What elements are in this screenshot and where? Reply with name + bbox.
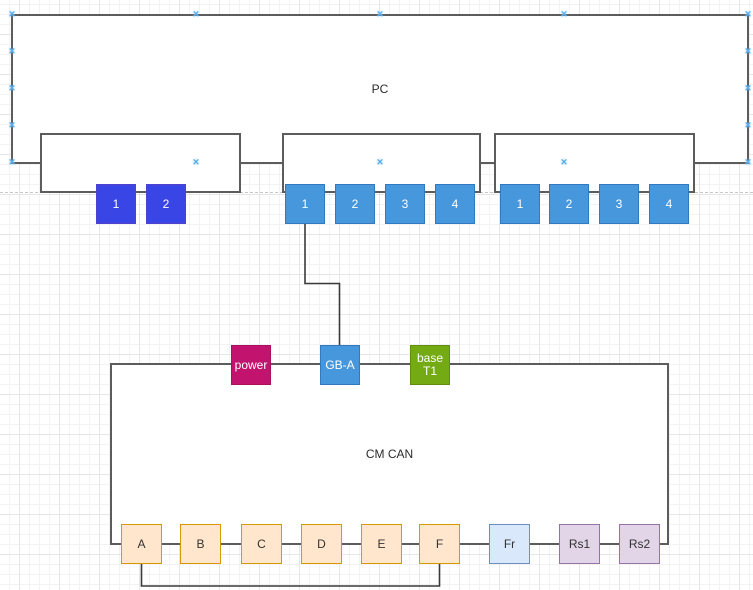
connection-point-icon[interactable]: × bbox=[193, 10, 199, 21]
adapter1-port-2[interactable]: 2 bbox=[146, 184, 186, 224]
connection-point-icon[interactable]: × bbox=[377, 158, 383, 169]
connector-label: power bbox=[235, 358, 268, 372]
connector-port-a-to-port-f[interactable] bbox=[142, 563, 440, 586]
cm-can-port-c[interactable]: C bbox=[241, 524, 282, 564]
port-label: C bbox=[257, 537, 266, 551]
cm-can-port-rs2[interactable]: Rs2 bbox=[619, 524, 660, 564]
port-label: 1 bbox=[302, 197, 309, 211]
connection-point-icon[interactable]: × bbox=[193, 158, 199, 169]
adapter3-port-2[interactable]: 2 bbox=[549, 184, 589, 224]
connection-point-icon[interactable]: × bbox=[745, 10, 751, 21]
diagram-canvas: PC CM CAN 1 2 1 2 3 4 1 2 3 4 power GB-A… bbox=[0, 0, 753, 590]
cm-can-port-fr[interactable]: Fr bbox=[489, 524, 530, 564]
cm-can-port-f[interactable]: F bbox=[419, 524, 460, 564]
connection-point-icon[interactable]: × bbox=[561, 158, 567, 169]
connection-point-icon[interactable]: × bbox=[745, 47, 751, 58]
cm-can-power-connector[interactable]: power bbox=[231, 345, 271, 385]
cm-can-port-a[interactable]: A bbox=[121, 524, 162, 564]
cm-can-port-rs1[interactable]: Rs1 bbox=[559, 524, 600, 564]
adapter3-port-1[interactable]: 1 bbox=[500, 184, 540, 224]
connector-layer bbox=[0, 0, 753, 590]
connector-label-line2: T1 bbox=[423, 365, 437, 378]
cm-can-port-e[interactable]: E bbox=[361, 524, 402, 564]
port-label: D bbox=[317, 537, 326, 551]
connection-point-icon[interactable]: × bbox=[9, 158, 15, 169]
adapter2-port-3[interactable]: 3 bbox=[385, 184, 425, 224]
port-label: 4 bbox=[666, 197, 673, 211]
port-label: B bbox=[196, 537, 204, 551]
port-label: 3 bbox=[402, 197, 409, 211]
connection-point-icon[interactable]: × bbox=[9, 10, 15, 21]
port-label: 2 bbox=[352, 197, 359, 211]
port-label: 1 bbox=[113, 197, 120, 211]
adapter3-port-4[interactable]: 4 bbox=[649, 184, 689, 224]
adapter1-port-1[interactable]: 1 bbox=[96, 184, 136, 224]
cm-can-base-t1-connector[interactable]: base T1 bbox=[410, 345, 450, 385]
port-label: Fr bbox=[504, 537, 515, 551]
port-label: Rs2 bbox=[629, 537, 650, 551]
port-label: 2 bbox=[163, 197, 170, 211]
port-label: A bbox=[137, 537, 145, 551]
cm-can-port-b[interactable]: B bbox=[180, 524, 221, 564]
connector-label: GB-A bbox=[325, 358, 354, 372]
connection-point-icon[interactable]: × bbox=[9, 121, 15, 132]
adapter2-port-1[interactable]: 1 bbox=[285, 184, 325, 224]
port-label: 2 bbox=[566, 197, 573, 211]
connection-point-icon[interactable]: × bbox=[9, 84, 15, 95]
port-label: F bbox=[436, 537, 443, 551]
cm-can-port-d[interactable]: D bbox=[301, 524, 342, 564]
connection-point-icon[interactable]: × bbox=[745, 121, 751, 132]
port-label: 4 bbox=[452, 197, 459, 211]
connection-point-icon[interactable]: × bbox=[745, 84, 751, 95]
connection-point-icon[interactable]: × bbox=[9, 47, 15, 58]
port-label: 1 bbox=[517, 197, 524, 211]
port-label: E bbox=[377, 537, 385, 551]
port-label: 3 bbox=[616, 197, 623, 211]
connection-point-icon[interactable]: × bbox=[745, 158, 751, 169]
port-label: Rs1 bbox=[569, 537, 590, 551]
connection-point-icon[interactable]: × bbox=[377, 10, 383, 21]
connection-point-icon[interactable]: × bbox=[561, 10, 567, 21]
adapter2-port-2[interactable]: 2 bbox=[335, 184, 375, 224]
connector-adapter2-port1-to-gba[interactable] bbox=[305, 224, 340, 345]
adapter2-port-4[interactable]: 4 bbox=[435, 184, 475, 224]
cm-can-gba-connector[interactable]: GB-A bbox=[320, 345, 360, 385]
adapter3-port-3[interactable]: 3 bbox=[599, 184, 639, 224]
